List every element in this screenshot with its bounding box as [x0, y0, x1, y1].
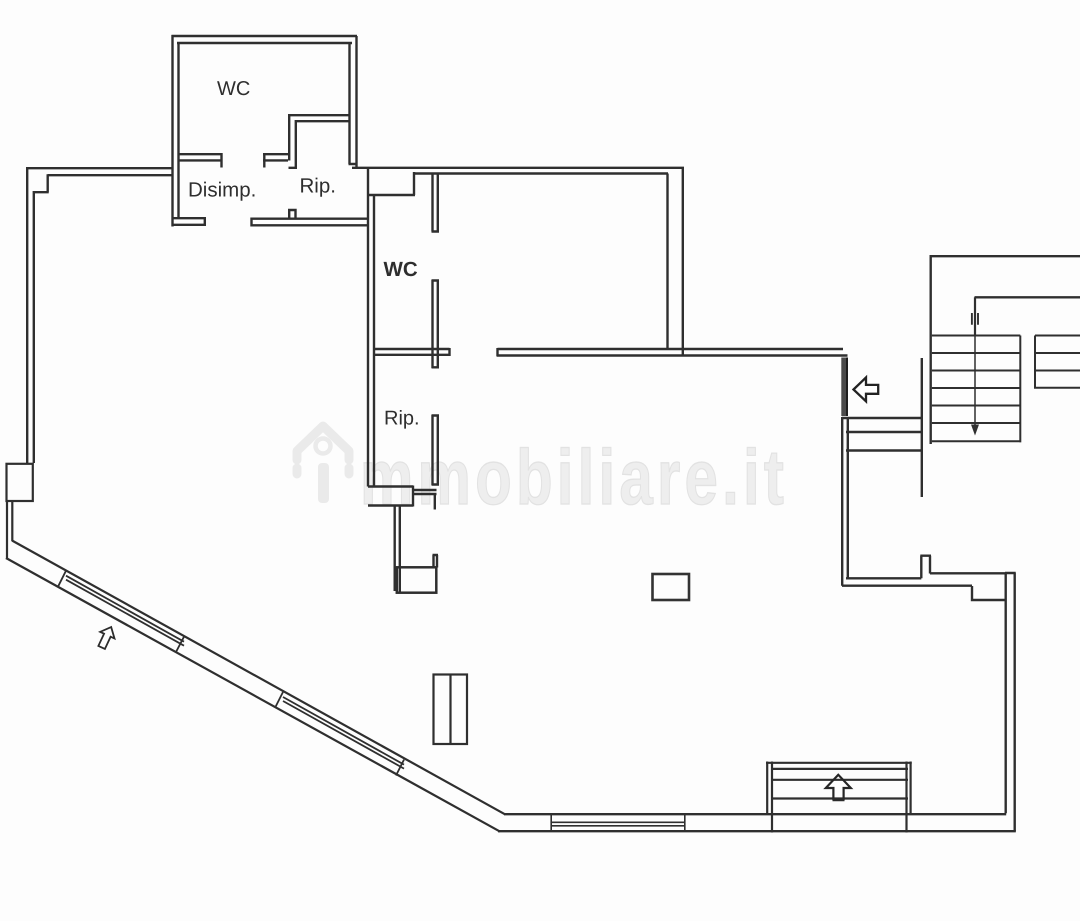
svg-text:Rip.: Rip.: [300, 175, 336, 198]
svg-text:WC: WC: [217, 78, 250, 100]
svg-text:Rip.: Rip.: [384, 408, 420, 430]
svg-text:mmobiliare.it: mmobiliare.it: [360, 434, 788, 521]
svg-text:WC: WC: [384, 258, 418, 281]
svg-text:Disimp.: Disimp.: [188, 179, 256, 202]
